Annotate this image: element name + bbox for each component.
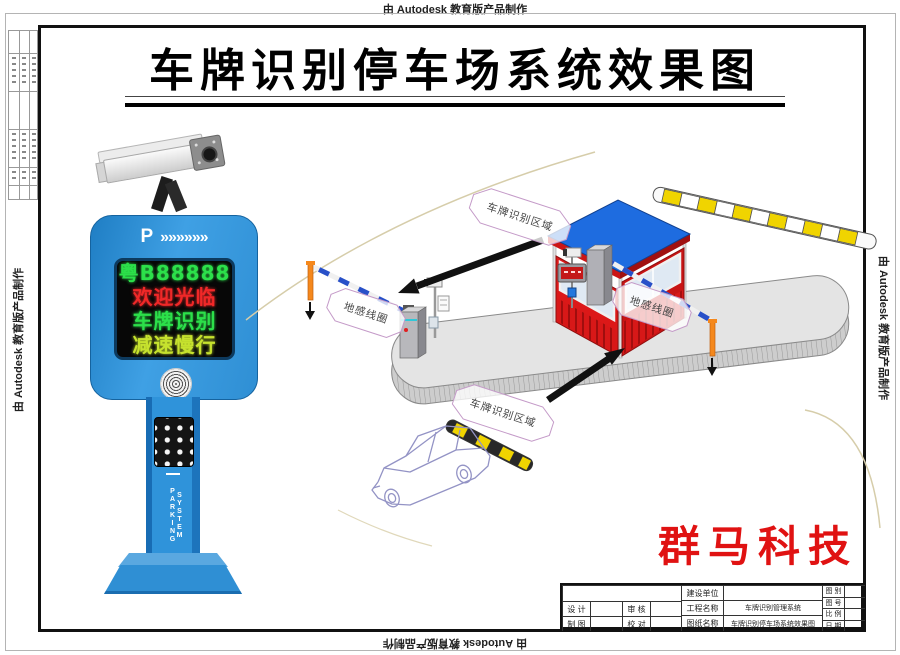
pole-camera-icon — [566, 248, 581, 257]
fill-light-panel — [154, 417, 194, 467]
tb-drawing-label: 图纸名称 — [681, 615, 723, 631]
tb-blank-top — [562, 585, 681, 601]
barrier-cabinet-side — [418, 307, 426, 358]
drawing-sheet: 由 Autodesk 教育版产品制作 由 Autodesk 教育版产品制作 由 … — [0, 0, 900, 655]
kiosk-head: P »»»»»» 粤B88888 欢迎光临 车牌识别 减速慢行 — [90, 215, 258, 400]
arm-support-post — [308, 264, 313, 300]
tb-scale-value — [844, 608, 865, 620]
kiosk-base-top — [118, 553, 228, 567]
down-arrow-head — [707, 367, 717, 376]
tb-figno-value — [844, 597, 865, 609]
tb-proof-label: 校 对 — [622, 616, 650, 631]
kiosk-pillar: PARKING SYSTEM — [146, 397, 200, 555]
arm-support-cap — [306, 261, 315, 265]
led-line-plate: 粤B88888 — [117, 261, 232, 285]
led-glyph — [571, 271, 575, 273]
tb-design-value — [590, 601, 622, 616]
kiosk-base — [104, 565, 242, 594]
title-underline-thick — [125, 103, 785, 107]
arm-support-cap — [708, 319, 717, 323]
camera-led-dot — [198, 161, 201, 164]
signature-column-table — [8, 30, 38, 200]
tb-figtype-value — [844, 585, 865, 597]
chevrons-icon: »»»»»» — [160, 229, 207, 246]
down-arrow-head — [305, 311, 315, 320]
tb-review-label: 审 核 — [622, 601, 650, 616]
card-reader — [568, 288, 576, 297]
tb-figtype-label: 图 别 — [822, 585, 844, 597]
tb-date-label: 日 期 — [822, 620, 844, 632]
tb-draft-label: 制 图 — [562, 616, 590, 631]
parking-system-label: PARKING SYSTEM — [169, 479, 223, 553]
pillar-rule — [166, 473, 180, 475]
led-line-slowdown: 减速慢行 — [117, 333, 232, 357]
tb-draft-value — [590, 616, 622, 631]
label-plate-top: 车牌识别区域 — [466, 184, 574, 250]
parking-kiosk: P »»»»»» 粤B88888 欢迎光临 车牌识别 减速慢行 PARKING … — [88, 135, 266, 615]
tb-figno-label: 图 号 — [822, 597, 844, 609]
led-display: 粤B88888 欢迎光临 车牌识别 减速慢行 — [114, 258, 235, 360]
tb-project-value: 车牌识别管理系统 — [723, 600, 822, 615]
tb-design-label: 设 计 — [562, 601, 590, 616]
tb-drawing-value: 车牌识别停车场系统效果图 — [723, 615, 822, 631]
parking-p-sign: P »»»»»» — [91, 226, 257, 248]
info-sign — [438, 296, 449, 311]
road-arc-bottom — [338, 510, 432, 546]
camera-led-dot — [212, 140, 215, 143]
camera-led-dot — [215, 158, 218, 161]
p-letter: P — [140, 226, 153, 247]
led-line-recognition: 车牌识别 — [117, 309, 232, 333]
barrier-cabinet-side — [604, 245, 612, 305]
led-glyph — [564, 271, 568, 273]
tb-owner-label: 建设单位 — [681, 585, 723, 600]
camera-front — [189, 134, 226, 171]
arm-support-post — [710, 322, 715, 356]
tb-owner-value — [723, 585, 822, 600]
direction-arrow-exit — [398, 240, 543, 294]
title-underline-thin — [125, 96, 785, 97]
speaker-icon — [160, 368, 192, 400]
drawing-title: 车牌识别停车场系统效果图 — [115, 34, 795, 99]
led-glyph — [578, 271, 581, 273]
tb-date-value — [844, 620, 865, 632]
barrier-cabinet-front — [587, 250, 604, 305]
pole-camera-lens — [563, 249, 567, 256]
tb-proof-value — [650, 616, 681, 631]
led-line-welcome: 欢迎光临 — [117, 285, 232, 309]
parking-lot-scene: 车牌识别区域 地感线圈 地感线圈 车牌识别区域 — [260, 160, 880, 560]
title-block: 设 计 审 核 制 图 校 对 建设单位 工程名称 车牌识别管理系统 图纸名称 … — [560, 583, 863, 629]
tb-scale-label: 比 例 — [822, 608, 844, 620]
ticket-box — [429, 317, 438, 328]
cabinet-light — [404, 328, 408, 332]
tb-review-value — [650, 601, 681, 616]
road-arc-right — [805, 410, 880, 528]
camera-led-dot — [194, 143, 197, 146]
tb-project-label: 工程名称 — [681, 600, 723, 615]
